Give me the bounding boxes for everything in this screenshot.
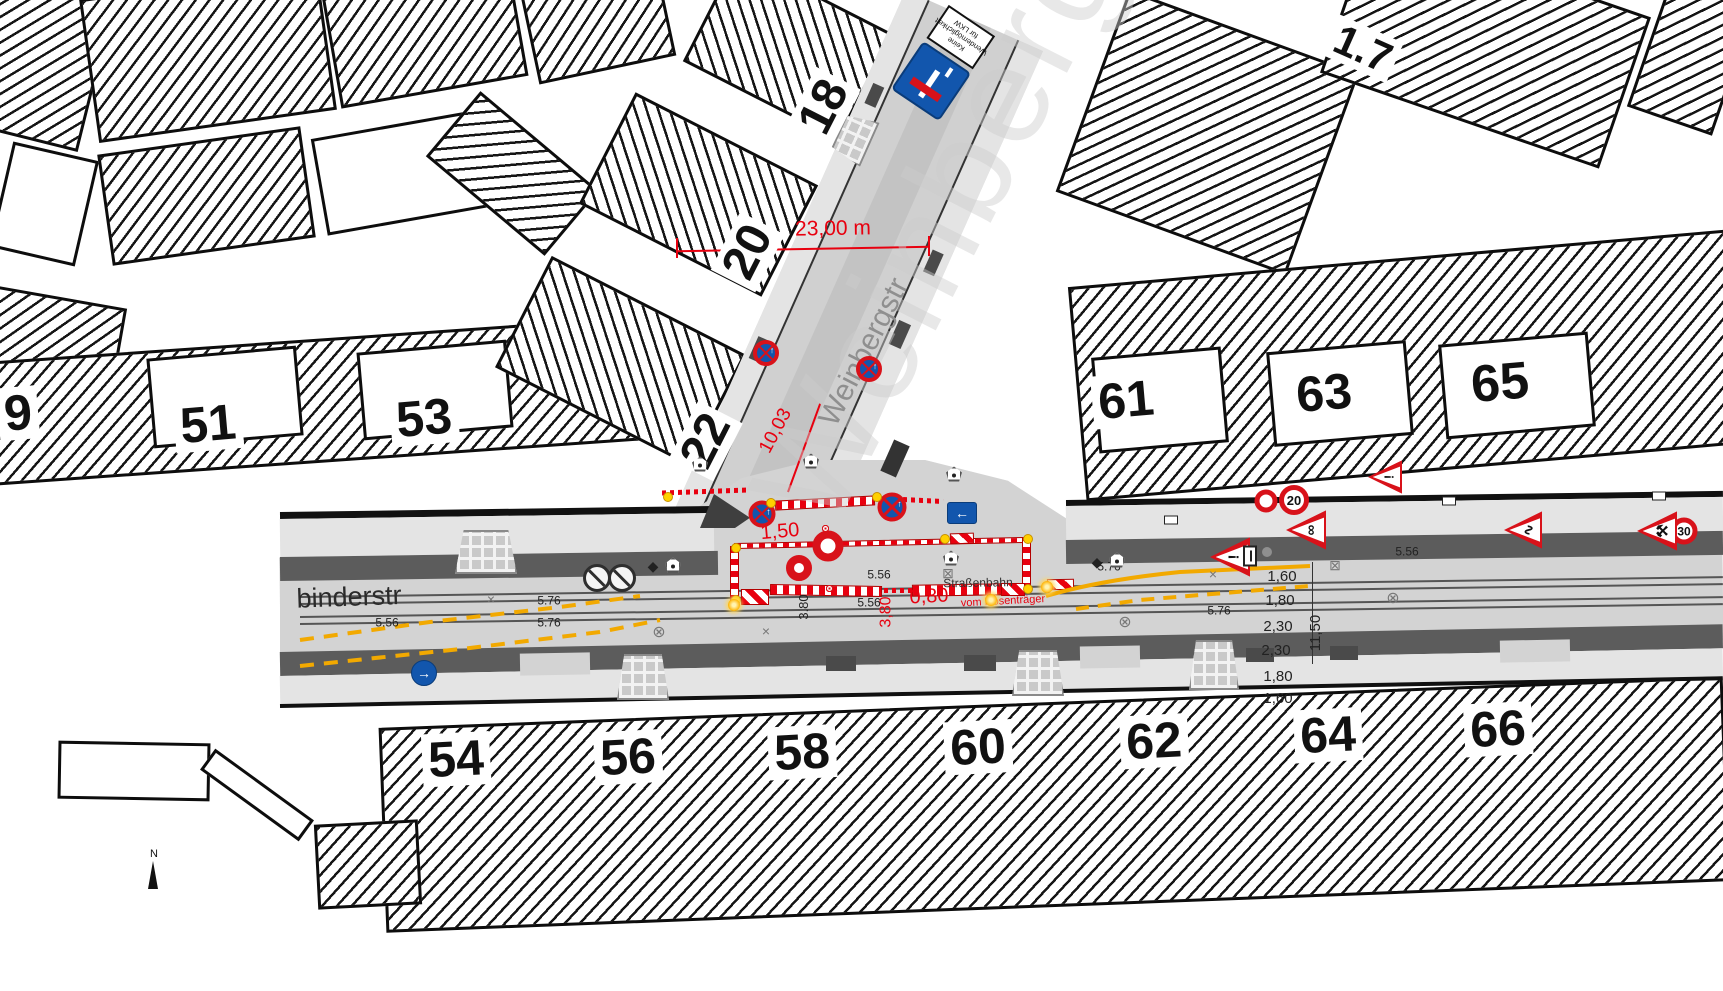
- warning-triangle-sign: !: [1368, 460, 1402, 494]
- measure-label: 5.76: [537, 595, 560, 608]
- measure-label: 5.76: [537, 617, 560, 630]
- map-symbol-diamond: ◆: [1092, 555, 1103, 569]
- utility-box-symbol: [1652, 492, 1666, 501]
- no-stopping-arrow-icon: ↑: [897, 498, 902, 508]
- parcel-number: 66: [1463, 701, 1533, 757]
- warning-lamp: [940, 534, 950, 544]
- no-parking-existing-sign: [583, 564, 611, 592]
- warning-lamp: [766, 498, 776, 508]
- no-stopping-sign: ↑: [856, 356, 882, 382]
- no-stopping-sign: ↑: [753, 340, 779, 366]
- blue-arrow-sign: →: [411, 660, 437, 686]
- warning-triangle-sign: ∞: [1286, 510, 1326, 550]
- cross-section-measure: 2,30: [1261, 643, 1290, 659]
- street-name: binderstr: [296, 581, 402, 613]
- warning-lamp: [663, 492, 673, 502]
- flashing-lamp: [1041, 581, 1053, 593]
- parcel-number: 64: [1293, 707, 1363, 763]
- no-vehicles-sign: [786, 555, 812, 581]
- flashing-lamp: [985, 594, 997, 606]
- generated-layer: 951532220186163651.754565860626466Weinbe…: [0, 0, 1723, 991]
- dimension-label-red: vom Hosenträger: [961, 594, 1046, 610]
- parcel-number: 58: [767, 724, 837, 780]
- no-vehicles-sign: [813, 531, 844, 562]
- no-stopping-arrow-icon: ↑: [770, 345, 775, 355]
- warning-triangle-sign: ⚒: [1637, 511, 1677, 551]
- parcel-number: 56: [593, 729, 663, 785]
- lamp-post-symbol: [665, 558, 681, 573]
- parcel-number: 18: [787, 66, 862, 147]
- prohibition-sign: [1255, 490, 1278, 513]
- traffic-plan-canvas: N 951532220186163651.754565860626466Wein…: [0, 0, 1723, 991]
- warning-lamp: [1023, 534, 1033, 544]
- blue-arrow-sign: ←: [947, 502, 977, 524]
- warning-glyph-icon: ∞: [1303, 525, 1320, 536]
- cross-section-measure: 1,80: [1265, 593, 1294, 609]
- parcel-number: 60: [943, 719, 1013, 775]
- no-stopping-arrow-icon: ↑: [873, 361, 878, 371]
- barrier-foot: [822, 525, 829, 532]
- flashing-lamp: [728, 599, 740, 611]
- map-symbol-circlex: ⊗: [652, 625, 665, 641]
- warning-glyph-icon: ∿: [1520, 524, 1537, 536]
- measure-label: 5.56: [1395, 546, 1418, 559]
- warning-triangle-sign: ∿: [1504, 511, 1542, 549]
- measure-label: 5.56: [857, 597, 880, 610]
- warning-glyph-icon: ⚒: [1654, 524, 1672, 537]
- map-symbol-boxx: ⊠: [942, 566, 954, 580]
- parcel-number: 9: [0, 385, 40, 441]
- measure-label: 5.76: [1207, 605, 1230, 618]
- dead-end-sign-hbar: [909, 77, 942, 103]
- dimension-label-red: 3,80: [879, 596, 896, 627]
- measure-label: 5.56: [375, 617, 398, 630]
- map-symbol-circlex: ⊗: [1118, 615, 1131, 631]
- map-symbol-boxx: ⊠: [1329, 558, 1341, 572]
- map-symbol-diamond: ◆: [648, 559, 659, 573]
- no-parking-existing-sign: [608, 564, 636, 592]
- utility-box-symbol: [1164, 516, 1178, 525]
- cross-section-measure: 1,60: [1263, 691, 1292, 707]
- measure-label: 5.56: [867, 569, 890, 582]
- cross-section-measure: 1,60: [1267, 569, 1296, 585]
- parcel-number: 65: [1463, 353, 1537, 413]
- parcel-number: 51: [172, 395, 244, 453]
- parcel-number: 20: [711, 211, 786, 292]
- parcel-number: 54: [421, 731, 491, 787]
- map-symbol-circlex: ⊗: [1386, 591, 1399, 607]
- parcel-number: 61: [1090, 371, 1162, 429]
- small-info-plate: [1243, 546, 1257, 567]
- warning-glyph-icon: !: [1226, 555, 1243, 560]
- warning-lamp: [1023, 584, 1033, 594]
- warning-lamp: [731, 543, 741, 553]
- dead-end-sign-ped: [944, 67, 953, 77]
- map-symbol-xmark: ×: [762, 624, 770, 638]
- utility-box-symbol: [1442, 497, 1456, 506]
- parcel-number: 62: [1119, 713, 1189, 769]
- barrier-foot: [826, 585, 833, 592]
- parcel-number: 53: [388, 389, 460, 447]
- warning-lamp: [872, 492, 882, 502]
- cross-section-measure: 2,30: [1263, 619, 1292, 635]
- warning-glyph-icon: !: [1381, 475, 1396, 479]
- lamp-post-symbol: [946, 467, 962, 482]
- lamp-post-symbol: [943, 551, 959, 566]
- cross-section-measure: 11,50: [1308, 615, 1324, 651]
- parcel-number: 63: [1288, 364, 1360, 422]
- dimension-label-red: 0,80: [909, 585, 949, 608]
- map-symbol-xmark: ×: [487, 592, 495, 606]
- measure-label: 3.80: [797, 594, 811, 619]
- cross-section-measure: 1,80: [1263, 669, 1292, 685]
- tree-or-post-symbol: [1262, 547, 1272, 557]
- map-symbol-xmark: ×: [1209, 567, 1217, 581]
- parcel-number: 1.7: [1322, 15, 1404, 84]
- dimension-label-red: 23,00 m: [795, 217, 871, 240]
- lamp-post-symbol: [1109, 553, 1125, 568]
